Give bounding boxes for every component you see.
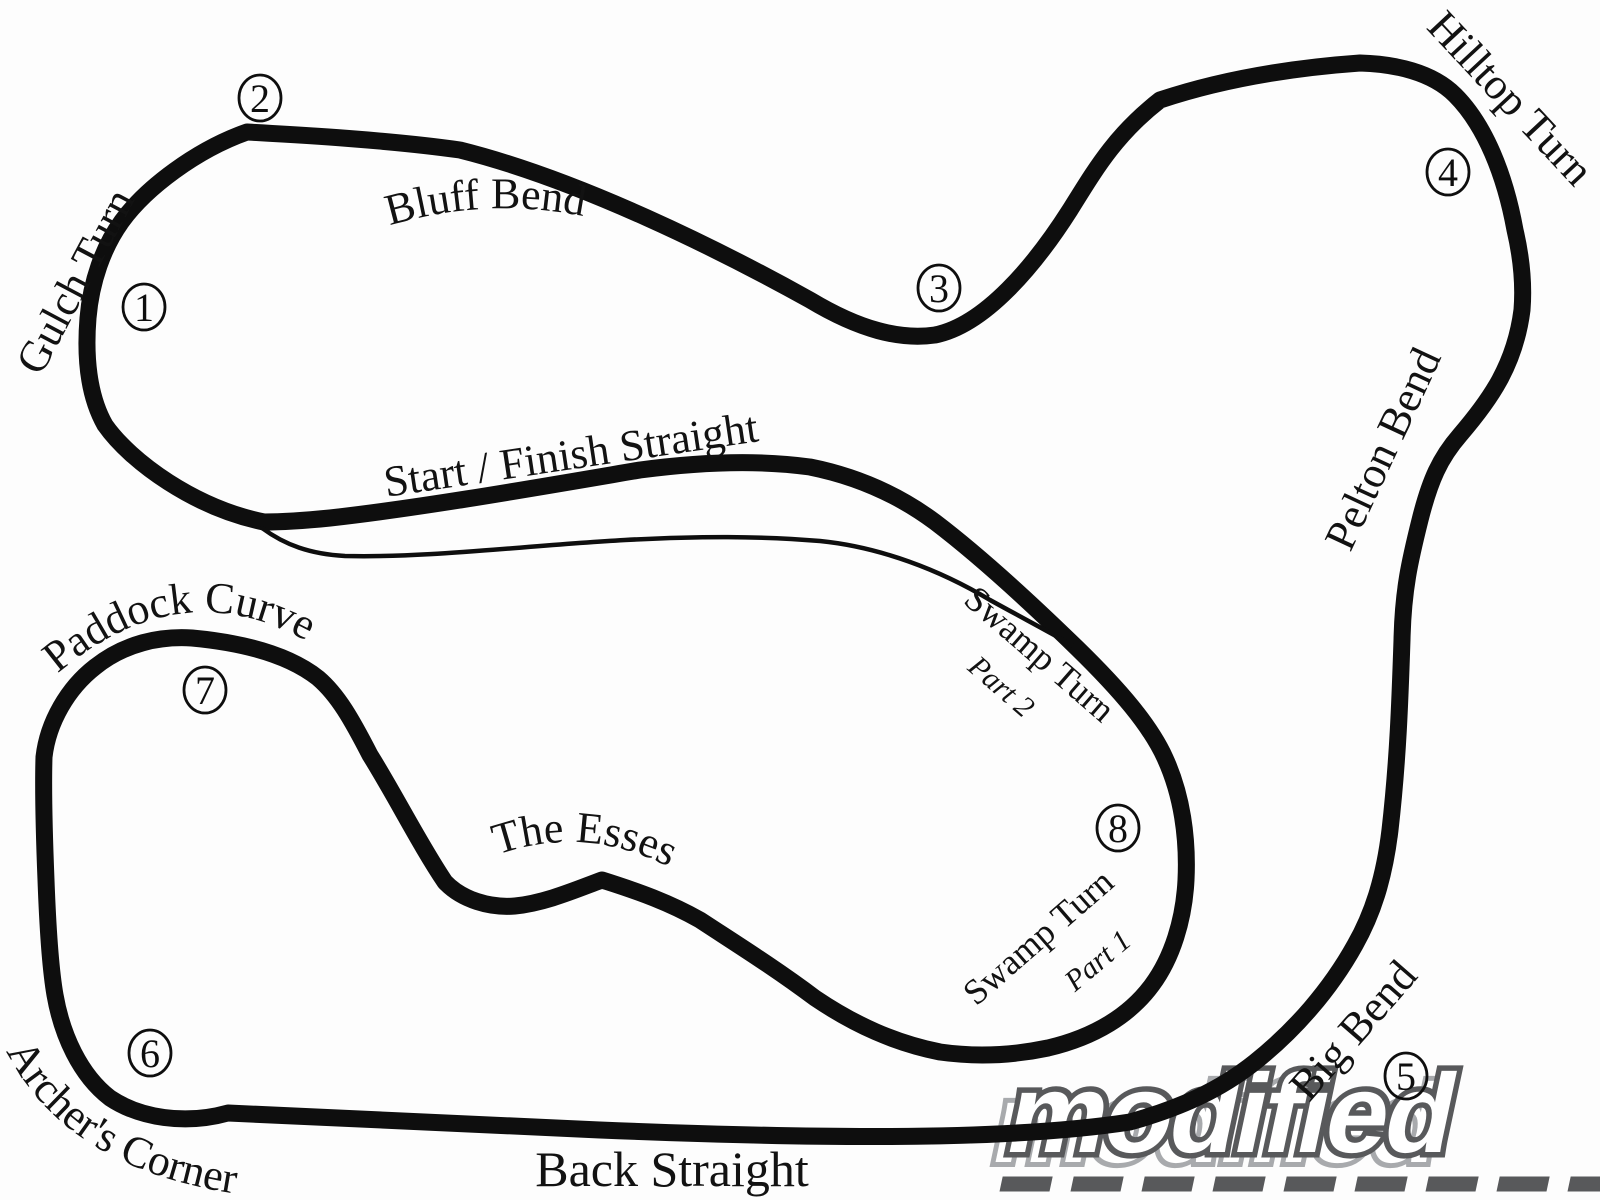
turn-number-2: 2	[250, 76, 270, 121]
turn-marker-2: 2	[239, 75, 281, 121]
label-back-straight: Back Straight	[535, 1141, 809, 1197]
turn-number-5: 5	[1396, 1054, 1416, 1099]
label-pelton-bend: Pelton Bend	[1315, 340, 1451, 557]
label-start-finish-straight: Start / Finish Straight	[380, 403, 761, 507]
turn-number-8: 8	[1108, 806, 1128, 851]
turn-marker-7: 7	[184, 667, 226, 713]
label-the-esses: The Esses	[486, 803, 685, 876]
turn-marker-4: 4	[1427, 149, 1469, 195]
turn-number-1: 1	[134, 285, 154, 330]
label-bluff-bend: Bluff Bend	[380, 169, 590, 235]
turn-marker-8: 8	[1097, 805, 1139, 851]
turn-marker-1: 1	[123, 284, 165, 330]
turn-number-3: 3	[929, 266, 949, 311]
turn-marker-3: 3	[918, 265, 960, 311]
track-map-svg: modified modified Gulch Turn Bluff Bend …	[0, 0, 1600, 1200]
turn-number-7: 7	[195, 668, 215, 713]
track-map: modified modified Gulch Turn Bluff Bend …	[0, 0, 1600, 1200]
turn-number-6: 6	[140, 1031, 160, 1076]
label-gulch-turn: Gulch Turn	[6, 181, 144, 382]
label-swamp-turn-part1: Swamp Turn	[955, 861, 1121, 1013]
turn-marker-6: 6	[129, 1030, 171, 1076]
turn-number-4: 4	[1438, 150, 1458, 195]
